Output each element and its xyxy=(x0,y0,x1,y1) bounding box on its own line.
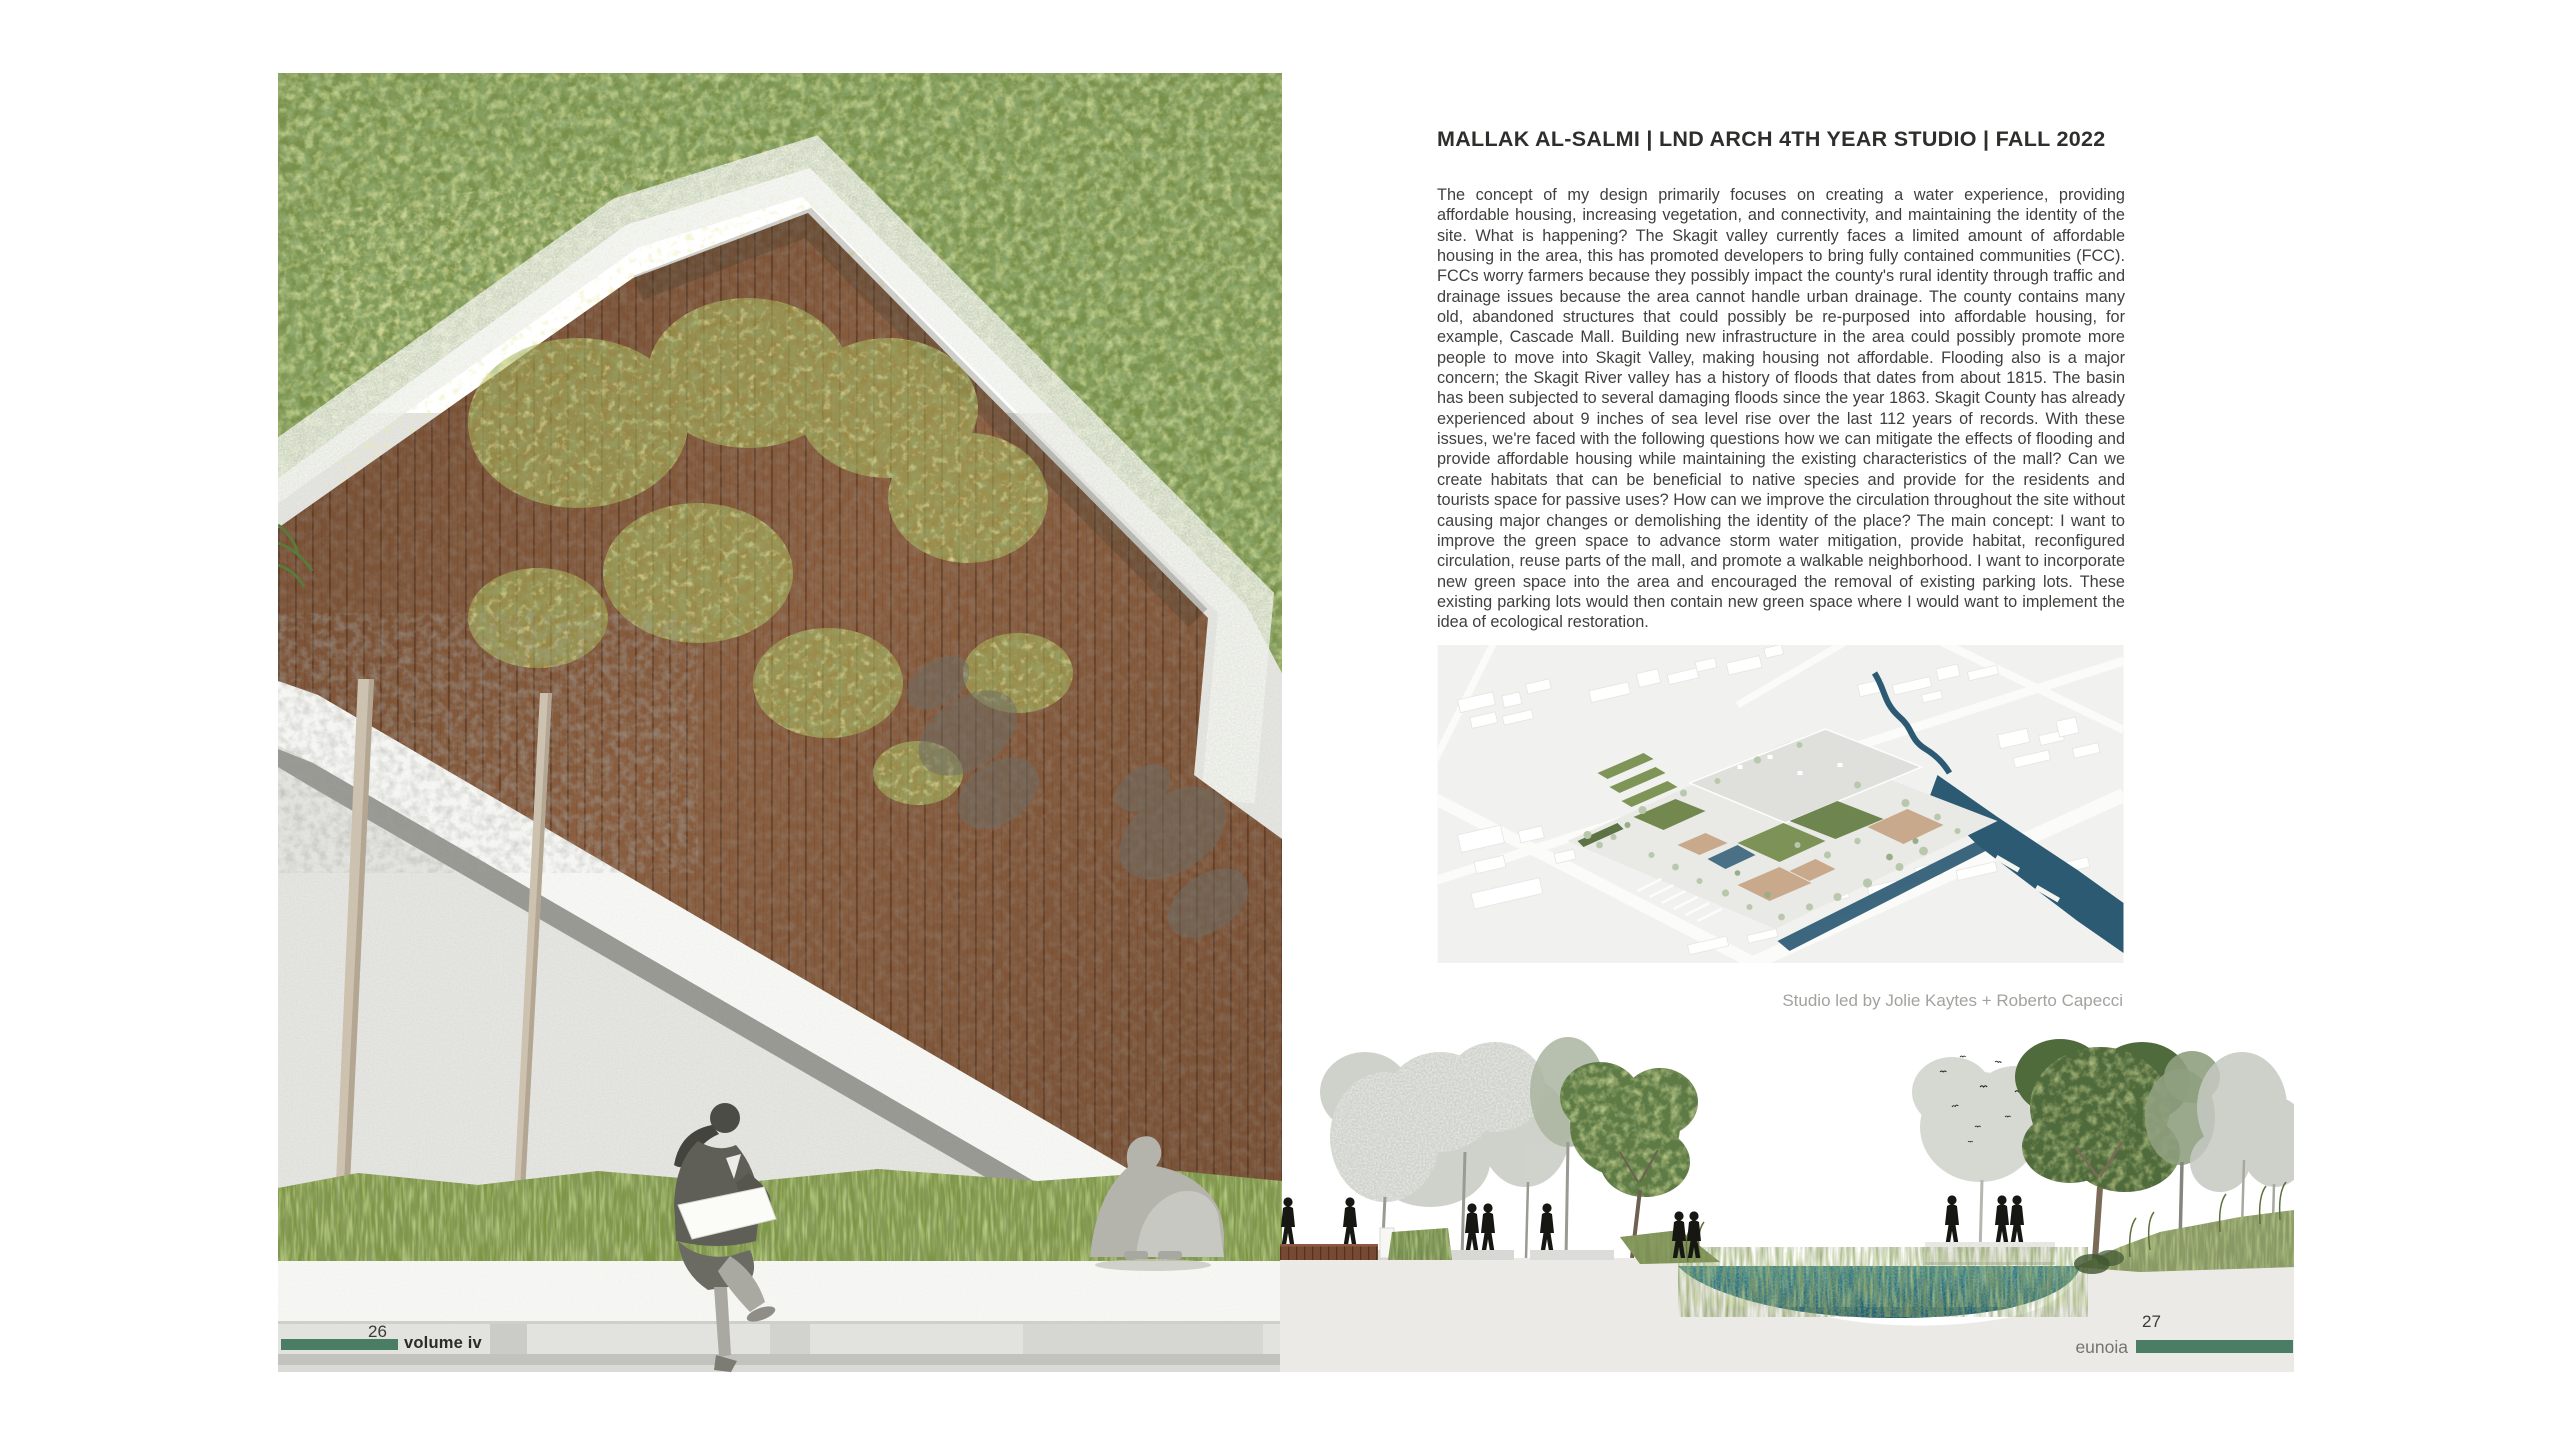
studio-caption: Studio led by Jolie Kaytes + Roberto Cap… xyxy=(1437,991,2123,1011)
faded-trees-left xyxy=(1320,1037,1606,1258)
imprint-label: eunoia xyxy=(2000,1337,2128,1358)
pond xyxy=(1678,1247,2088,1318)
page-number-right: 27 xyxy=(2142,1312,2161,1332)
volume-label: volume iv xyxy=(404,1334,482,1353)
project-statement: The concept of my design primarily focus… xyxy=(1437,185,2125,633)
leaf-shadow-mottle xyxy=(278,613,698,873)
aerial-site-rendering xyxy=(1437,645,2124,963)
imprint-bar xyxy=(2136,1340,2293,1353)
left-page-artwork xyxy=(278,73,1282,1372)
portfolio-spread: 26 volume iv MALLAK AL-SALMI | LND ARCH … xyxy=(0,0,2560,1443)
page-title: MALLAK AL-SALMI | LND ARCH 4TH YEAR STUD… xyxy=(1437,127,2137,152)
page-number-left: 26 xyxy=(368,1322,387,1342)
